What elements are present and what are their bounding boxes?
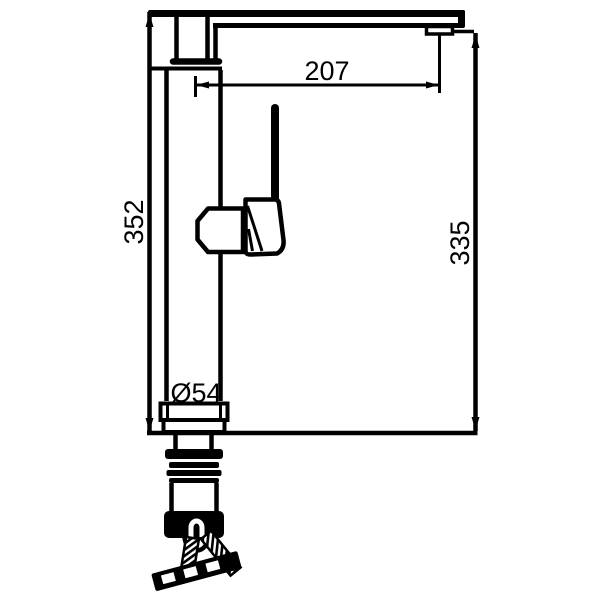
dimension-label-352: 352 [119, 199, 149, 244]
mounting-shank [165, 435, 223, 512]
cartridge-cap [198, 209, 244, 253]
dimension-spout-reach: 207 [196, 33, 440, 97]
spout-outline [148, 10, 474, 34]
dimension-label-335: 335 [445, 220, 475, 265]
dimension-label-diameter-54: Ø54 [170, 378, 221, 408]
spout-collar [151, 15, 222, 69]
mounting-hardware [151, 511, 242, 591]
dimension-label-207: 207 [304, 56, 349, 86]
dimension-outlet-height: 335 [445, 33, 480, 431]
aerator-nozzle [427, 27, 453, 35]
drawing-svg: 207 352 335 Ø54 [0, 0, 600, 600]
dimension-overall-height: 352 [119, 12, 154, 431]
faucet-dimension-drawing: 207 352 335 Ø54 [0, 0, 600, 600]
handle-group [198, 108, 284, 255]
